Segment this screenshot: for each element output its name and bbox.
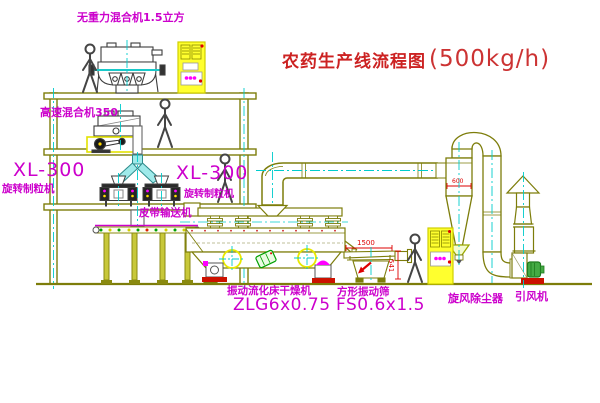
button-icon — [434, 257, 438, 261]
dimension-sieve-length: 1500 — [357, 240, 375, 247]
title-capacity: (500kg/h) — [429, 46, 550, 72]
button-icon — [442, 257, 446, 261]
exhaust-duct — [262, 163, 437, 205]
dimension-sieve-side: 541 — [387, 259, 394, 272]
duct-centerlines — [256, 152, 459, 213]
belt-conveyor — [93, 226, 200, 285]
indicator-light-icon — [448, 230, 451, 233]
label-granulator-left-model: XL-300 — [13, 161, 85, 180]
fan-motor-icon — [528, 262, 541, 277]
label-granulator-right-model: XL-300 — [176, 164, 248, 183]
button-icon — [185, 76, 189, 80]
person-figure — [408, 235, 422, 283]
control-cabinet-right — [428, 228, 453, 284]
label-fan: 引风机 — [515, 291, 548, 302]
label-dryer-model: ZLG6x0.75 — [233, 297, 331, 314]
label-sieve-model: FS0.6x1.5 — [336, 297, 425, 314]
flow-diagram: 农药生产线流程图 (500kg/h) 无重力混合机1.5立方 高速混合机350 … — [0, 0, 600, 403]
vibration-motor-left — [202, 261, 227, 282]
induced-draft-fan — [512, 253, 544, 284]
title-text: 农药生产线流程图 — [282, 47, 426, 72]
label-granulator-left-name: 旋转制粒机 — [2, 184, 55, 195]
label-granulator-right-name: 旋转制粒机 — [184, 190, 234, 200]
indicator-light-icon — [448, 260, 451, 263]
button-icon — [193, 76, 197, 80]
exhaust-stack — [507, 176, 539, 253]
button-icon — [189, 76, 193, 80]
label-high-speed-mixer: 高速混合机350 — [40, 107, 118, 118]
label-weightless-mixer: 无重力混合机1.5立方 — [77, 12, 185, 23]
vibrating-sieve — [344, 250, 412, 283]
page-title: 农药生产线流程图 (500kg/h) — [282, 46, 550, 72]
control-cabinet-top — [178, 42, 205, 93]
label-belt-conveyor: 皮带输送机 — [139, 208, 192, 219]
button-icon — [438, 257, 442, 261]
indicator-light-icon — [199, 79, 202, 82]
label-cyclone: 旋风除尘器 — [448, 293, 503, 304]
person-figure — [83, 45, 97, 93]
person-figure — [158, 100, 172, 148]
indicator-light-icon — [200, 44, 203, 47]
dimension-cyclone-body: 600 — [452, 179, 463, 185]
